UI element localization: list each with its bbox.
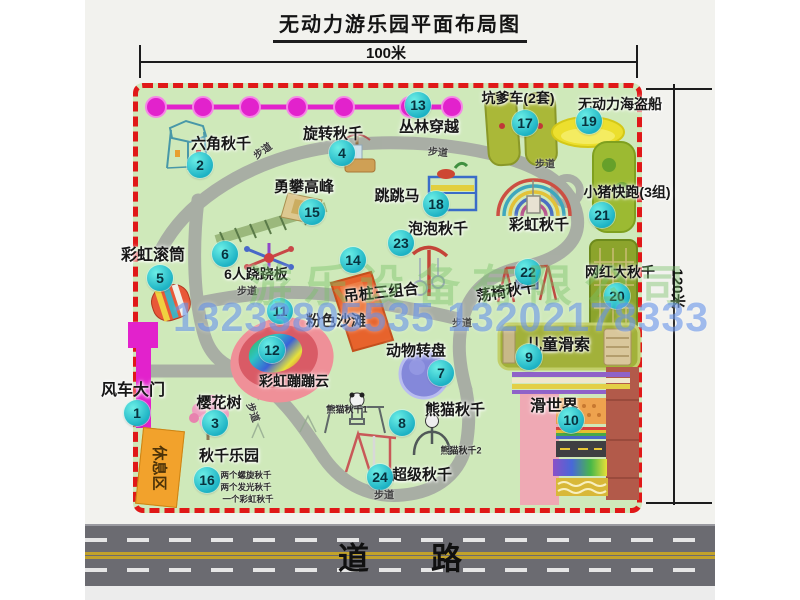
number-badge-15: 15	[299, 199, 325, 225]
footpath-label: 步道	[374, 487, 394, 502]
map-label-4: 旋转秋千	[303, 123, 363, 144]
map-label-21: 小猪快跑(3组)	[583, 182, 670, 202]
number-badge-16: 16	[194, 467, 220, 493]
number-badge-1: 1	[124, 400, 150, 426]
map-items-layer: 风车大门1六角秋千2樱花树3旋转秋千4彩虹滚筒56人跷跷板6动物转盘7熊猫秋千8…	[0, 0, 800, 600]
number-badge-18: 18	[423, 191, 449, 217]
map-label-16: 秋千乐园	[199, 445, 259, 466]
page-title: 无动力游乐园平面布局图	[273, 8, 527, 43]
number-badge-13: 13	[405, 92, 431, 118]
sub-label: 一个彩虹秋千	[222, 493, 273, 505]
footpath-label: 步道	[244, 400, 265, 424]
map-label-17: 坑爹车(2套)	[481, 88, 554, 108]
below-road-strip	[85, 586, 715, 600]
map-label-2: 六角秋千	[191, 133, 251, 154]
screenshot-canvas: 无动力游乐园平面布局图 100米 120米	[0, 0, 800, 600]
road: 道 路	[85, 524, 715, 588]
number-badge-23: 23	[388, 230, 414, 256]
number-badge-20: 20	[604, 283, 630, 309]
map-label-7: 动物转盘	[386, 340, 446, 361]
number-badge-6: 6	[212, 241, 238, 267]
number-badge-2: 2	[187, 152, 213, 178]
map-label-14: 吊桩三组合	[343, 278, 420, 307]
number-badge-21: 21	[589, 202, 615, 228]
footpath-label: 步道	[452, 315, 472, 330]
number-badge-8: 8	[389, 410, 415, 436]
map-label-8: 熊猫秋千	[425, 399, 485, 420]
sub-label: 两个发光秋千	[220, 481, 271, 493]
sub-label: 熊猫秋千2	[440, 444, 481, 457]
footpath-label: 步道	[250, 138, 275, 162]
map-label-20: 网红大秋千	[585, 262, 655, 282]
number-badge-17: 17	[512, 110, 538, 136]
sub-label: 熊猫秋千1	[326, 403, 367, 416]
number-badge-5: 5	[147, 265, 173, 291]
map-label-11: 粉色沙滩	[306, 310, 366, 331]
map-label-12: 彩虹蹦蹦云	[259, 371, 329, 391]
map-label-15: 勇攀高峰	[274, 176, 334, 197]
footpath-label: 步道	[535, 156, 555, 171]
number-badge-14: 14	[340, 247, 366, 273]
number-badge-11: 11	[267, 298, 293, 324]
number-badge-9: 9	[516, 344, 542, 370]
footpath-label: 步道	[237, 283, 257, 298]
number-badge-4: 4	[329, 140, 355, 166]
map-label-1: 风车大门	[101, 376, 165, 400]
number-badge-12: 12	[259, 337, 285, 363]
sub-label: 两个螺旋秋千	[220, 469, 271, 481]
map-label-rainbow-swing: 彩虹秋千	[509, 214, 569, 235]
number-badge-19: 19	[576, 108, 602, 134]
footpath-label: 步道	[427, 143, 448, 160]
map-label-23: 泡泡秋千	[408, 218, 468, 239]
map-label-3: 樱花树	[196, 392, 241, 413]
map-label-13: 丛林穿越	[399, 116, 459, 137]
road-label: 道 路	[338, 534, 462, 579]
number-badge-22: 22	[515, 259, 541, 285]
number-badge-7: 7	[428, 360, 454, 386]
number-badge-3: 3	[202, 410, 228, 436]
map-label-24: 超级秋千	[392, 464, 452, 485]
map-label-5: 彩虹滚筒	[121, 241, 185, 265]
map-label-18: 跳跳马	[374, 185, 419, 206]
map-label-6: 6人跷跷板	[224, 264, 288, 284]
number-badge-10: 10	[558, 407, 584, 433]
